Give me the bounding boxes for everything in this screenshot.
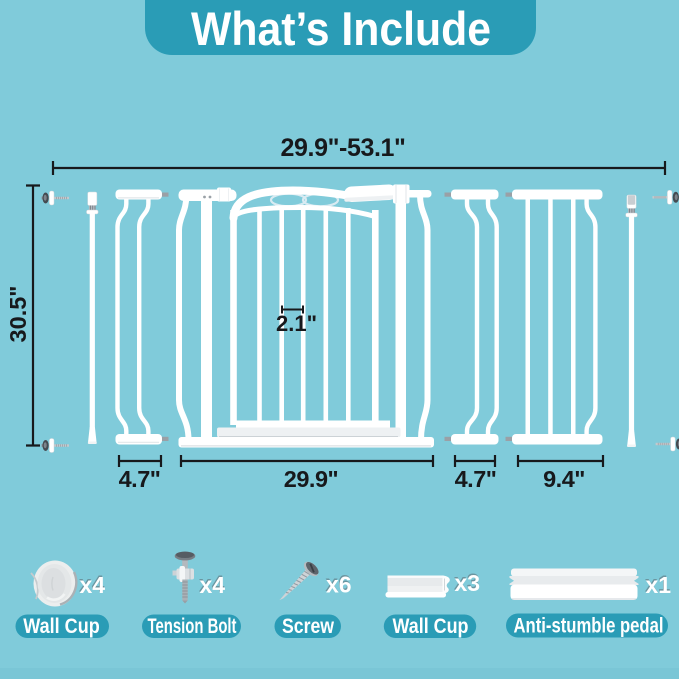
svg-text:4.7": 4.7" <box>455 466 497 492</box>
svg-text:9.4": 9.4" <box>543 466 585 492</box>
svg-text:Anti-stumble pedal: Anti-stumble pedal <box>514 615 664 638</box>
svg-text:30.5": 30.5" <box>5 286 31 343</box>
svg-text:29.9"-53.1": 29.9"-53.1" <box>281 134 406 162</box>
svg-text:Wall Cup: Wall Cup <box>393 615 469 638</box>
svg-text:Screw: Screw <box>282 615 335 638</box>
svg-text:x4: x4 <box>80 572 106 598</box>
svg-text:x1: x1 <box>646 572 672 598</box>
svg-text:Tension Bolt: Tension Bolt <box>148 615 237 638</box>
svg-text:Wall Cup: Wall Cup <box>23 615 100 638</box>
svg-text:29.9": 29.9" <box>284 466 338 492</box>
svg-text:4.7": 4.7" <box>119 466 161 492</box>
svg-text:x6: x6 <box>326 572 352 598</box>
svg-text:x4: x4 <box>200 572 226 598</box>
svg-text:2.1": 2.1" <box>276 311 317 336</box>
svg-text:x3: x3 <box>455 570 481 596</box>
svg-text:What’s Include: What’s Include <box>191 2 491 55</box>
